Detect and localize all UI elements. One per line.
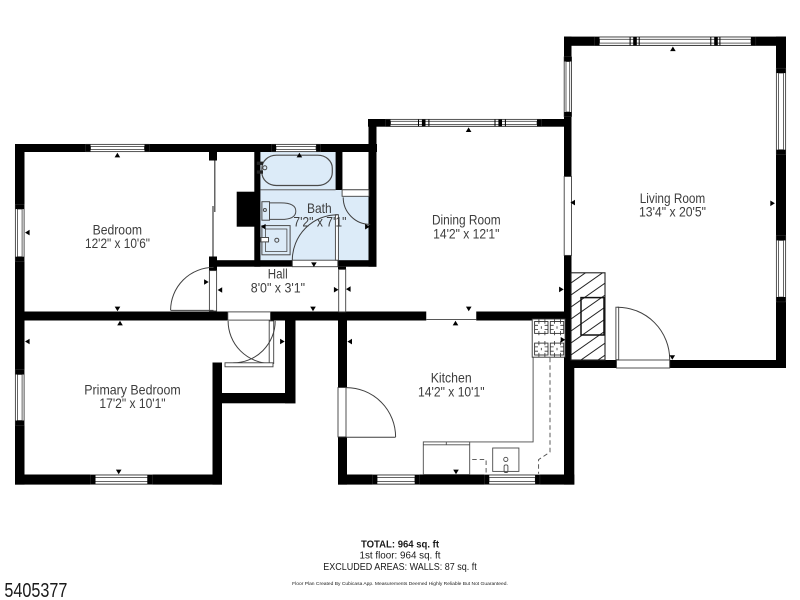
- svg-text:Floor Plan Created By Cubicasa: Floor Plan Created By Cubicasa App. Meas…: [292, 581, 508, 587]
- svg-text:8'0" x 3'1": 8'0" x 3'1": [251, 280, 305, 295]
- svg-text:Dining Room: Dining Room: [432, 213, 501, 228]
- svg-text:17'2" x 10'1": 17'2" x 10'1": [99, 396, 165, 411]
- svg-text:12'2" x 10'6": 12'2" x 10'6": [85, 236, 150, 251]
- svg-text:14'2" x 12'1": 14'2" x 12'1": [433, 227, 499, 242]
- svg-text:TOTAL: 964 sq. ft: TOTAL: 964 sq. ft: [361, 540, 440, 551]
- svg-text:7'2" x 7'1": 7'2" x 7'1": [293, 215, 346, 230]
- svg-text:EXCLUDED AREAS: WALLS: 87 sq.: EXCLUDED AREAS: WALLS: 87 sq. ft: [323, 562, 477, 573]
- svg-text:14'2" x 10'1": 14'2" x 10'1": [418, 384, 485, 399]
- svg-text:13'4" x 20'5": 13'4" x 20'5": [639, 205, 706, 220]
- svg-text:5405377: 5405377: [4, 579, 67, 600]
- svg-text:1st floor: 964 sq. ft: 1st floor: 964 sq. ft: [360, 551, 441, 562]
